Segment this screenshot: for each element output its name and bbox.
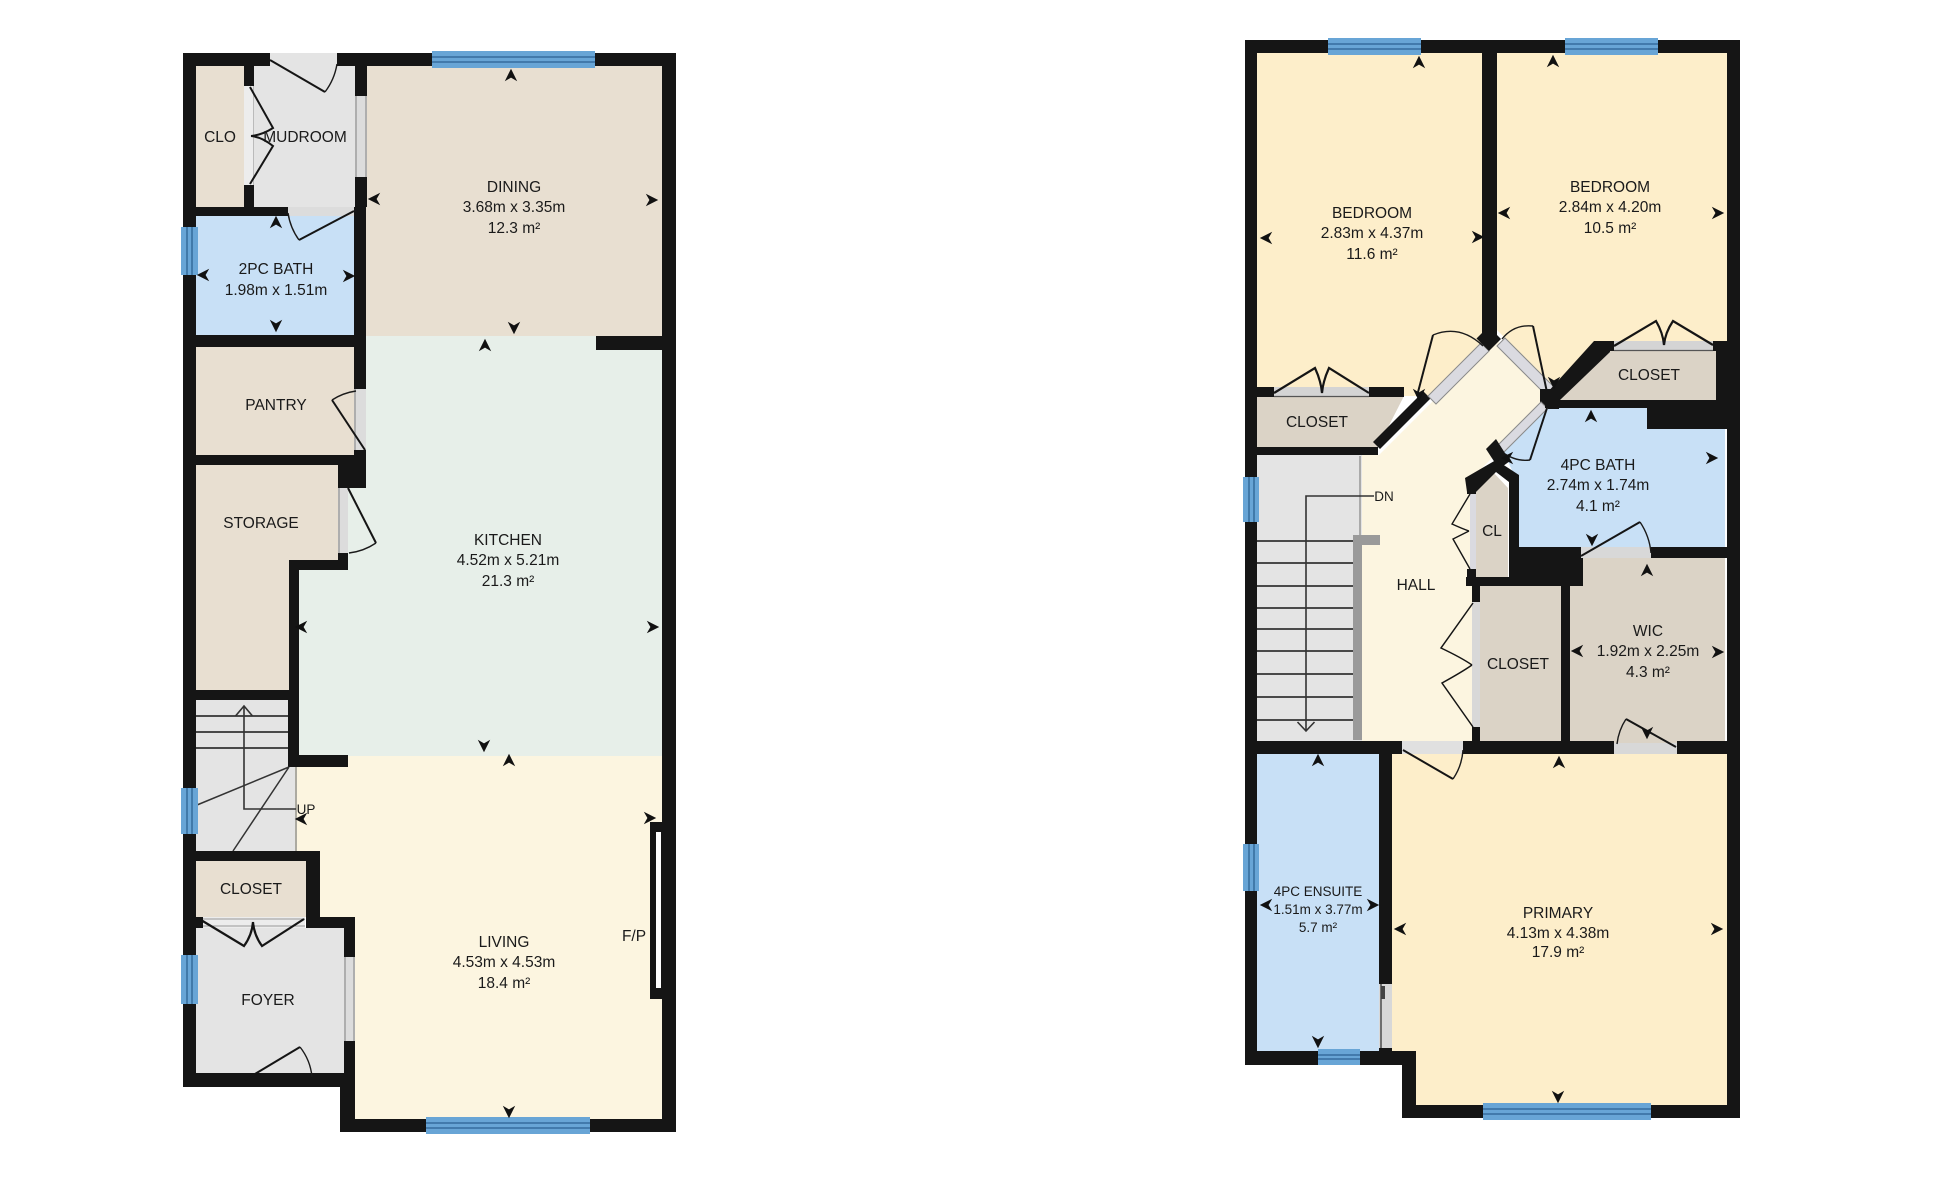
svg-text:2PC BATH: 2PC BATH — [239, 261, 314, 278]
svg-text:4.13m x 4.38m: 4.13m x 4.38m — [1507, 925, 1610, 942]
svg-text:BEDROOM: BEDROOM — [1332, 205, 1412, 222]
svg-text:CLO: CLO — [204, 129, 236, 146]
svg-text:4.1 m²: 4.1 m² — [1576, 498, 1620, 515]
svg-text:CLOSET: CLOSET — [220, 881, 283, 898]
svg-text:1.98m x 1.51m: 1.98m x 1.51m — [225, 282, 328, 299]
svg-text:4PC BATH: 4PC BATH — [1561, 457, 1636, 474]
svg-text:CLOSET: CLOSET — [1487, 656, 1550, 673]
svg-text:4.3 m²: 4.3 m² — [1626, 664, 1670, 681]
svg-text:18.4 m²: 18.4 m² — [478, 975, 531, 992]
svg-text:2.83m x 4.37m: 2.83m x 4.37m — [1321, 225, 1424, 242]
svg-text:DN: DN — [1374, 489, 1394, 504]
svg-text:1.51m x 3.77m: 1.51m x 3.77m — [1273, 902, 1362, 917]
svg-text:STORAGE: STORAGE — [223, 515, 299, 532]
svg-text:LIVING: LIVING — [479, 934, 530, 951]
svg-text:2.84m x 4.20m: 2.84m x 4.20m — [1559, 199, 1662, 216]
svg-text:10.5 m²: 10.5 m² — [1584, 220, 1637, 237]
svg-text:FOYER: FOYER — [241, 992, 294, 1009]
svg-text:12.3 m²: 12.3 m² — [488, 220, 541, 237]
svg-text:PRIMARY: PRIMARY — [1523, 905, 1593, 922]
svg-text:5.7 m²: 5.7 m² — [1299, 920, 1338, 935]
svg-text:CL: CL — [1482, 523, 1502, 540]
svg-text:11.6 m²: 11.6 m² — [1346, 246, 1397, 263]
svg-text:2.74m x 1.74m: 2.74m x 1.74m — [1547, 477, 1650, 494]
svg-text:CLOSET: CLOSET — [1286, 414, 1349, 431]
svg-text:MUDROOM: MUDROOM — [263, 129, 347, 146]
svg-text:1.92m x 2.25m: 1.92m x 2.25m — [1597, 643, 1700, 660]
svg-text:WIC: WIC — [1633, 623, 1663, 640]
svg-text:3.68m x 3.35m: 3.68m x 3.35m — [463, 199, 566, 216]
svg-text:17.9 m²: 17.9 m² — [1532, 944, 1585, 961]
svg-text:4PC ENSUITE: 4PC ENSUITE — [1274, 884, 1363, 899]
svg-text:4.52m x 5.21m: 4.52m x 5.21m — [457, 552, 560, 569]
svg-text:HALL: HALL — [1397, 577, 1436, 594]
svg-text:4.53m x 4.53m: 4.53m x 4.53m — [453, 954, 556, 971]
svg-text:CLOSET: CLOSET — [1618, 367, 1681, 384]
svg-text:BEDROOM: BEDROOM — [1570, 179, 1650, 196]
svg-text:DINING: DINING — [487, 179, 541, 196]
svg-text:F/P: F/P — [622, 928, 646, 945]
svg-text:21.3 m²: 21.3 m² — [482, 573, 535, 590]
svg-text:KITCHEN: KITCHEN — [474, 532, 542, 549]
svg-text:PANTRY: PANTRY — [245, 397, 306, 414]
